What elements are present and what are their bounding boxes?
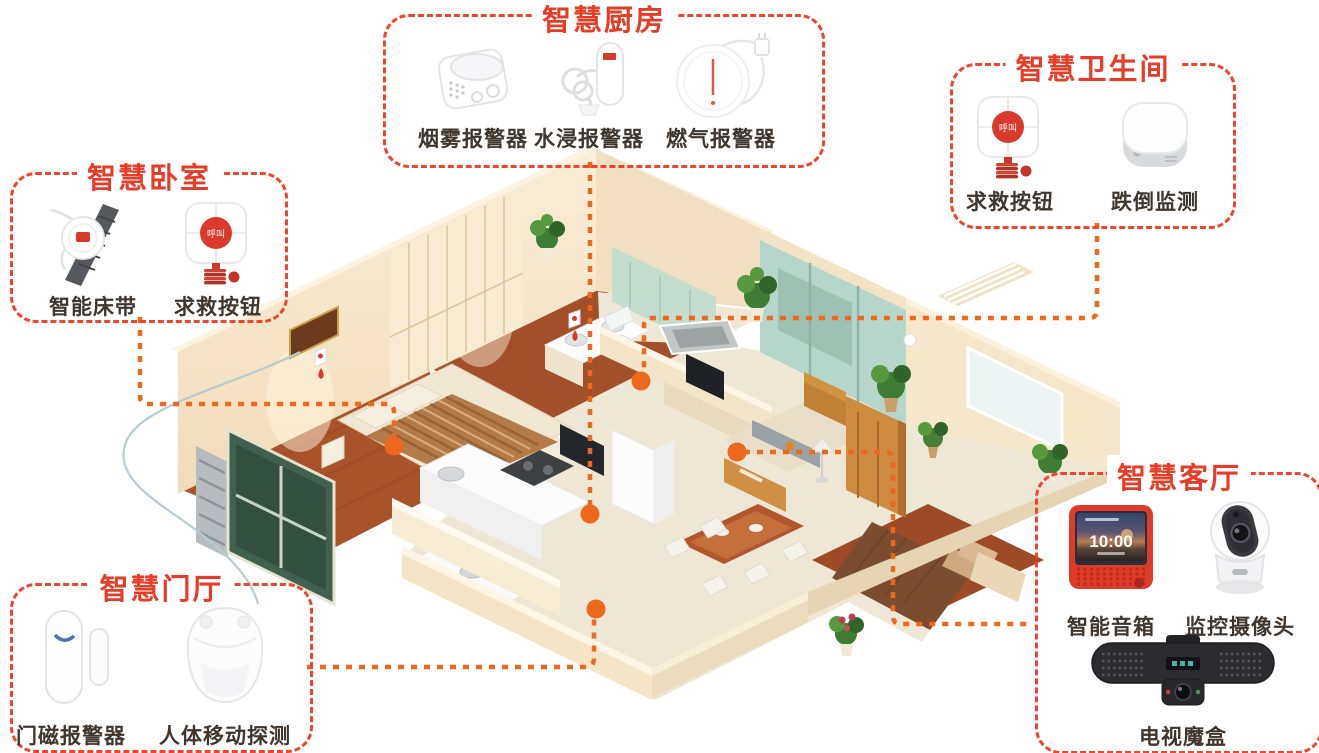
smart-home-infographic: 智慧厨房 烟雾报警器 [0,0,1319,753]
camera-icon [1194,497,1286,597]
device-label: 电视魔盒 [1078,721,1288,751]
anchor-dot-entrance [587,600,606,619]
device-label: 求救按钮 [143,291,293,321]
smoke-alarm-icon [425,35,521,121]
device-label: 水浸报警器 [514,123,664,153]
bed-band-icon [41,198,145,290]
device-card: 燃气报警器 [646,33,796,153]
motion-detector-icon [170,604,280,708]
anchor-dot-living [728,443,747,462]
smart-speaker-icon: 10:00 [1061,501,1161,593]
device-card: 水浸报警器 [514,33,664,153]
device-card: 10:00 智能音箱 [1036,497,1186,641]
sos-button-text: 呼叫 [207,229,225,239]
group-smart-entrance: 智慧门厅 门磁报警器 人体移动探测 [10,583,313,753]
plant-flowers [829,614,864,657]
device-card: 人体移动探测 [150,604,300,750]
group-smart-kitchen: 智慧厨房 烟雾报警器 [383,14,825,168]
anchor-dot-bedroom [385,437,404,456]
speaker-clock-text: 10:00 [1089,532,1132,551]
device-card: 门磁报警器 [0,608,146,750]
device-label: 跌倒监测 [1080,186,1230,216]
device-card: 监控摄像头 [1165,497,1315,641]
group-title: 智慧卫生间 [1005,46,1180,88]
group-title: 智慧卧室 [77,155,221,197]
door-sensor-icon [16,609,126,707]
device-label: 人体移动探测 [150,720,300,750]
sos-button-text: 呼叫 [999,123,1017,133]
gas-alarm-icon [669,33,773,123]
fall-detection-icon [1107,95,1203,181]
device-label: 燃气报警器 [646,123,796,153]
sos-button-icon: 呼叫 [962,91,1058,185]
anchor-dot-bathroom [632,372,651,391]
device-card: 呼叫 求救按钮 [935,90,1085,216]
sos-button-icon: 呼叫 [170,197,266,291]
house [172,146,1120,700]
device-label: 门磁报警器 [0,720,146,750]
water-leak-alarm-icon [541,35,637,121]
anchor-dot-kitchen [581,505,600,524]
device-card: 呼叫 求救按钮 [143,197,293,321]
group-smart-bedroom: 智慧卧室 智能床带 呼叫 [10,172,288,323]
wall-doorbell [904,334,916,346]
device-card: 电视魔盒 [1078,633,1288,751]
group-smart-living: 智慧客厅 10:00 [1035,472,1319,753]
group-title: 智慧客厅 [1107,455,1251,497]
group-title: 智慧门厅 [89,566,233,608]
device-card: 跌倒监测 [1080,90,1230,216]
group-smart-bathroom: 智慧卫生间 呼叫 求救按钮 [950,63,1236,229]
device-label: 求救按钮 [935,186,1085,216]
tv-box-icon [1088,633,1278,711]
